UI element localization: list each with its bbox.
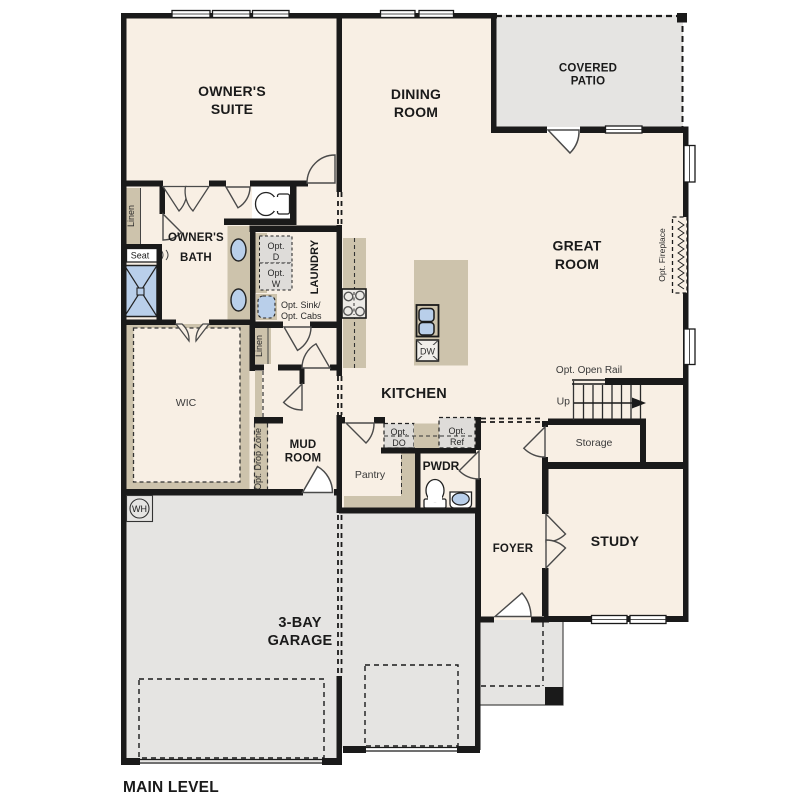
svg-text:COVERED: COVERED: [559, 63, 617, 75]
svg-text:DW: DW: [420, 347, 435, 357]
svg-text:Opt.: Opt.: [267, 241, 284, 251]
svg-text:Opt.: Opt.: [267, 268, 284, 278]
svg-text:KITCHEN: KITCHEN: [381, 386, 447, 402]
svg-text:GARAGE: GARAGE: [268, 633, 333, 649]
svg-text:ROOM: ROOM: [555, 256, 599, 272]
svg-text:Linen: Linen: [254, 335, 264, 357]
svg-text:D: D: [273, 252, 280, 262]
svg-text:MAIN LEVEL: MAIN LEVEL: [123, 779, 219, 796]
svg-text:Seat: Seat: [131, 251, 150, 261]
svg-text:Ref: Ref: [450, 437, 465, 447]
svg-text:3-BAY: 3-BAY: [278, 615, 321, 631]
svg-text:Opt. Sink/: Opt. Sink/: [281, 300, 321, 310]
svg-text:Opt.: Opt.: [448, 426, 465, 436]
svg-text:Opt. Drop Zone: Opt. Drop Zone: [253, 428, 263, 490]
svg-text:Opt. Open Rail: Opt. Open Rail: [556, 365, 622, 376]
svg-text:MUD: MUD: [290, 439, 317, 451]
svg-text:ROOM: ROOM: [394, 104, 438, 120]
svg-text:Storage: Storage: [576, 437, 613, 449]
svg-text:GREAT: GREAT: [553, 238, 602, 254]
svg-text:STUDY: STUDY: [591, 533, 640, 549]
svg-text:DINING: DINING: [391, 86, 441, 102]
svg-text:Opt. Fireplace: Opt. Fireplace: [657, 228, 667, 282]
svg-text:ROOM: ROOM: [285, 453, 322, 465]
svg-text:PATIO: PATIO: [571, 76, 605, 88]
svg-text:DO: DO: [392, 438, 406, 448]
svg-text:LAUNDRY: LAUNDRY: [309, 239, 321, 294]
svg-text:FOYER: FOYER: [493, 543, 534, 555]
svg-text:SUITE: SUITE: [211, 101, 253, 117]
svg-text:OWNER'S: OWNER'S: [168, 232, 224, 244]
svg-text:Opt. Cabs: Opt. Cabs: [281, 311, 322, 321]
svg-text:Up: Up: [557, 396, 571, 408]
svg-text:Linen: Linen: [126, 205, 136, 227]
svg-text:BATH: BATH: [180, 252, 212, 264]
svg-text:Pantry: Pantry: [355, 469, 386, 481]
svg-text:W: W: [272, 279, 281, 289]
svg-text:WIC: WIC: [176, 397, 197, 409]
svg-text:PWDR: PWDR: [423, 459, 460, 473]
svg-text:OWNER'S: OWNER'S: [198, 83, 266, 99]
svg-text:WH: WH: [132, 504, 147, 514]
